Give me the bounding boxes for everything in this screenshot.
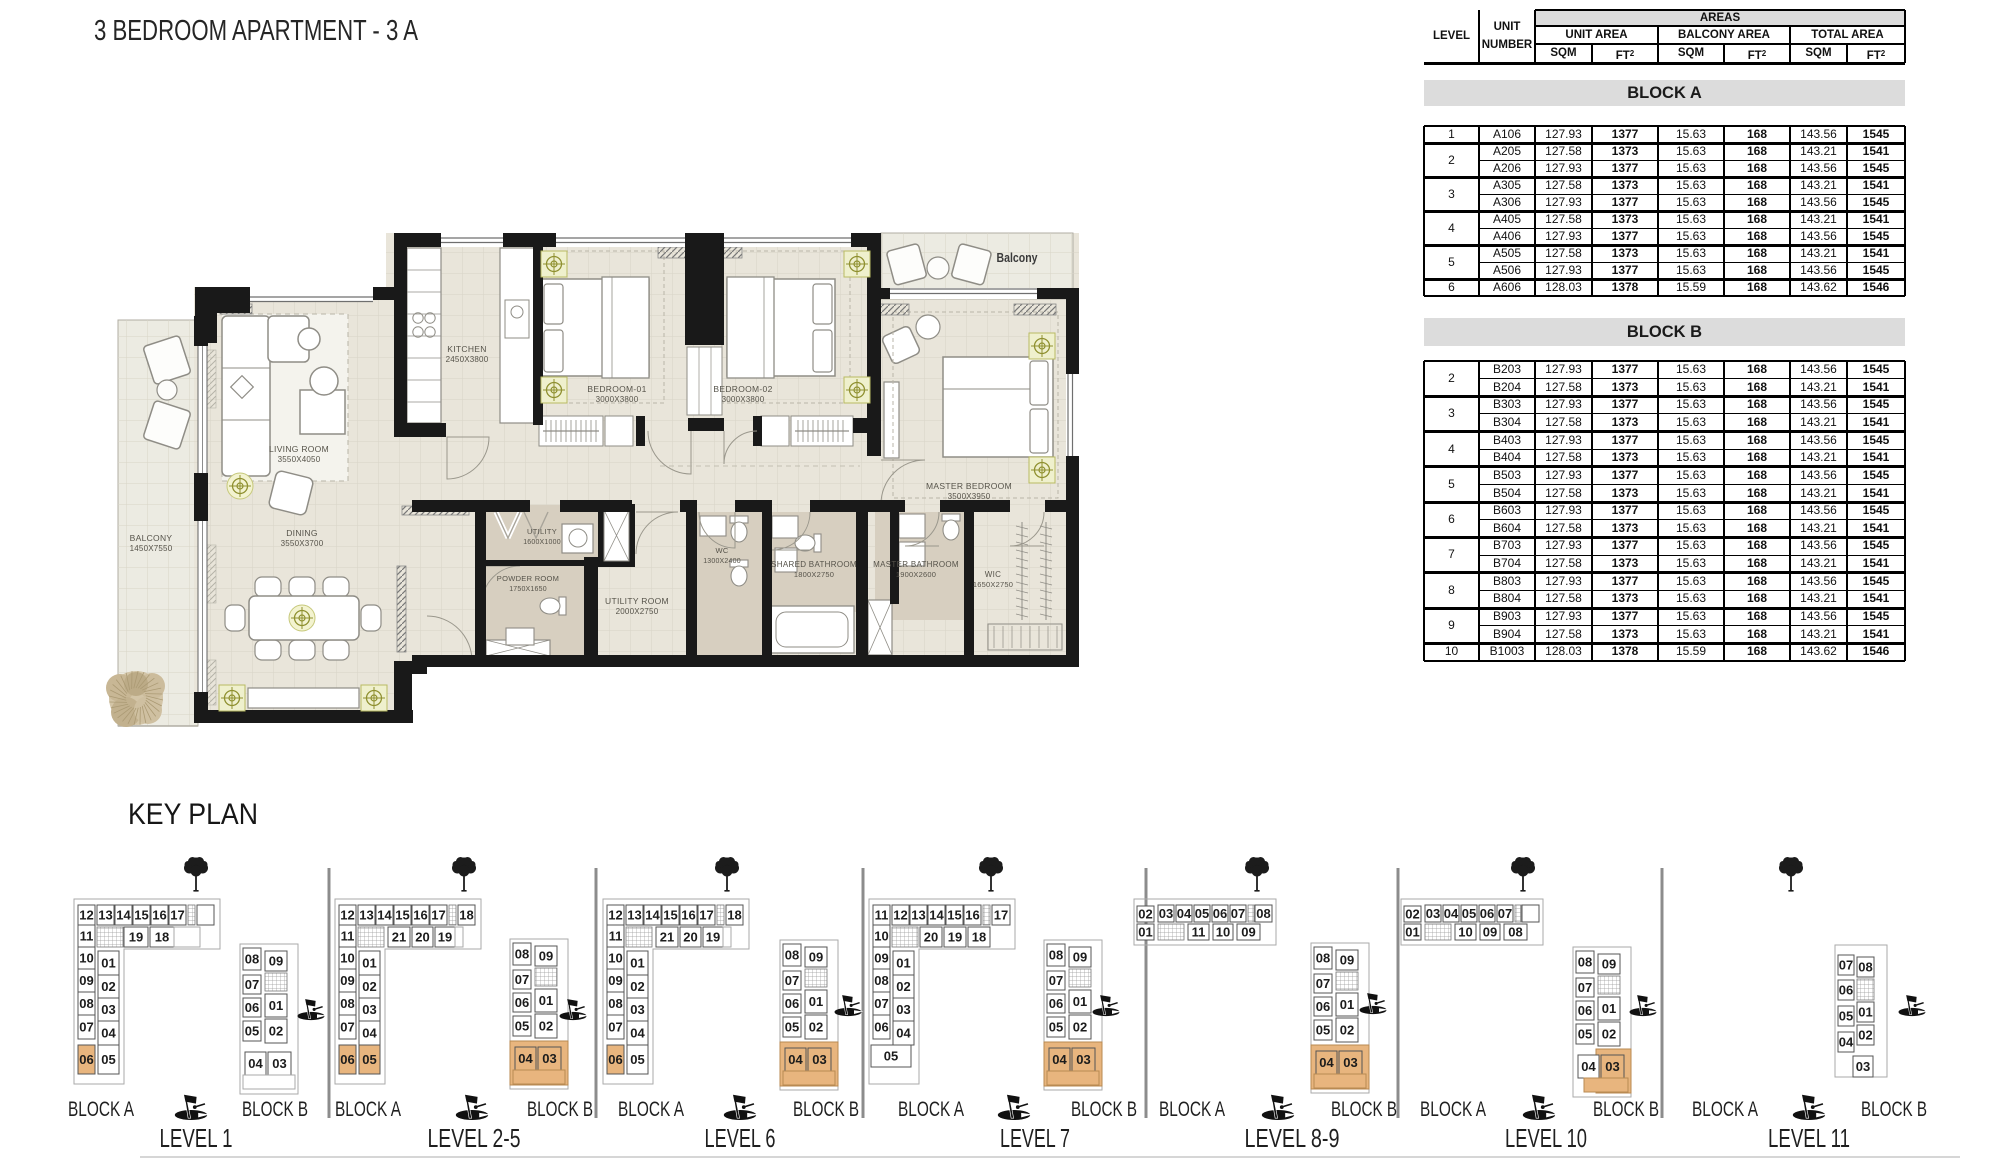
svg-text:06: 06	[1480, 906, 1494, 921]
svg-text:15: 15	[663, 908, 677, 923]
svg-text:LIVING ROOM: LIVING ROOM	[269, 444, 329, 454]
svg-text:03: 03	[1343, 1055, 1357, 1070]
svg-text:13: 13	[911, 908, 925, 923]
svg-text:03: 03	[1076, 1052, 1090, 1067]
svg-text:04: 04	[1177, 906, 1192, 921]
svg-text:15: 15	[395, 908, 409, 923]
svg-text:20: 20	[683, 930, 697, 945]
svg-text:15: 15	[947, 908, 961, 923]
svg-text:LEVEL 2-5: LEVEL 2-5	[428, 1123, 521, 1153]
svg-text:16: 16	[152, 908, 166, 923]
svg-text:14: 14	[116, 908, 131, 923]
svg-text:01: 01	[539, 993, 553, 1008]
svg-text:1900X2600: 1900X2600	[896, 570, 936, 579]
svg-text:03: 03	[812, 1052, 826, 1067]
svg-text:18: 18	[155, 930, 169, 945]
svg-text:SHARED BATHROOM: SHARED BATHROOM	[771, 560, 857, 569]
svg-text:05: 05	[101, 1052, 115, 1067]
svg-text:01: 01	[1858, 1005, 1872, 1020]
svg-text:09: 09	[1483, 925, 1497, 940]
svg-text:BLOCK B: BLOCK B	[1861, 1098, 1927, 1121]
svg-text:BLOCK A: BLOCK A	[1692, 1098, 1758, 1121]
svg-text:12: 12	[608, 908, 622, 923]
svg-text:08: 08	[1049, 948, 1063, 963]
svg-text:07: 07	[340, 1020, 354, 1035]
svg-text:1600X1000: 1600X1000	[523, 539, 561, 546]
svg-text:03: 03	[101, 1002, 115, 1017]
svg-text:04: 04	[788, 1052, 803, 1067]
svg-text:UTILITY ROOM: UTILITY ROOM	[605, 596, 669, 606]
svg-text:05: 05	[785, 1020, 799, 1035]
svg-text:LEVEL 8-9: LEVEL 8-9	[1245, 1123, 1340, 1153]
svg-text:07: 07	[245, 977, 259, 992]
svg-text:11: 11	[875, 908, 889, 923]
svg-text:20: 20	[415, 930, 429, 945]
svg-text:07: 07	[1231, 906, 1245, 921]
svg-text:02: 02	[1602, 1027, 1616, 1042]
svg-text:UTILITY: UTILITY	[527, 527, 557, 536]
svg-text:19: 19	[948, 930, 962, 945]
svg-text:08: 08	[874, 973, 888, 988]
svg-text:08: 08	[79, 996, 93, 1011]
svg-text:LEVEL 11: LEVEL 11	[1768, 1123, 1850, 1153]
svg-text:06: 06	[874, 1020, 888, 1035]
svg-text:3000X3800: 3000X3800	[596, 395, 639, 404]
svg-text:02: 02	[101, 979, 115, 994]
svg-text:05: 05	[1462, 906, 1476, 921]
svg-text:BLOCK A: BLOCK A	[68, 1098, 134, 1121]
svg-text:11: 11	[341, 929, 355, 944]
svg-text:16: 16	[413, 908, 427, 923]
svg-text:06: 06	[1213, 906, 1227, 921]
svg-text:DINING: DINING	[286, 528, 318, 538]
svg-text:BALCONY: BALCONY	[130, 533, 173, 543]
svg-text:08: 08	[1858, 960, 1872, 975]
svg-text:08: 08	[1578, 955, 1592, 970]
svg-text:1750X1650: 1750X1650	[509, 586, 547, 593]
svg-text:05: 05	[245, 1024, 259, 1039]
svg-text:06: 06	[608, 1052, 622, 1067]
svg-text:15: 15	[134, 908, 148, 923]
svg-text:19: 19	[706, 930, 720, 945]
svg-text:02: 02	[362, 979, 376, 994]
svg-text:05: 05	[362, 1052, 376, 1067]
svg-text:BLOCK A: BLOCK A	[618, 1098, 684, 1121]
svg-text:16: 16	[965, 908, 979, 923]
svg-text:18: 18	[459, 908, 473, 923]
svg-text:01: 01	[1602, 1001, 1616, 1016]
svg-text:02: 02	[809, 1020, 823, 1035]
svg-text:11: 11	[1192, 925, 1206, 940]
svg-text:06: 06	[515, 995, 529, 1010]
svg-text:04: 04	[1052, 1052, 1067, 1067]
svg-text:LEVEL 6: LEVEL 6	[705, 1123, 776, 1153]
svg-text:BLOCK A: BLOCK A	[1420, 1098, 1486, 1121]
svg-text:14: 14	[377, 908, 392, 923]
svg-text:17: 17	[699, 908, 713, 923]
svg-text:09: 09	[1340, 953, 1354, 968]
svg-text:07: 07	[79, 1020, 93, 1035]
svg-text:07: 07	[874, 996, 888, 1011]
svg-text:02: 02	[1340, 1023, 1354, 1038]
svg-text:03: 03	[542, 1051, 556, 1066]
svg-text:01: 01	[1405, 925, 1419, 940]
svg-text:LEVEL 10: LEVEL 10	[1505, 1123, 1587, 1153]
svg-text:KEY PLAN: KEY PLAN	[128, 798, 258, 831]
svg-text:09: 09	[608, 973, 622, 988]
svg-text:13: 13	[359, 908, 373, 923]
svg-text:07: 07	[608, 1020, 622, 1035]
svg-text:02: 02	[1138, 907, 1152, 922]
svg-text:1300X2400: 1300X2400	[703, 558, 741, 565]
svg-text:08: 08	[1508, 925, 1522, 940]
svg-text:12: 12	[79, 908, 93, 923]
svg-text:04: 04	[1581, 1059, 1596, 1074]
svg-text:02: 02	[1858, 1028, 1872, 1043]
svg-text:BLOCK A: BLOCK A	[335, 1098, 401, 1121]
svg-text:06: 06	[1578, 1003, 1592, 1018]
svg-text:03: 03	[1426, 906, 1440, 921]
svg-text:06: 06	[79, 1052, 93, 1067]
svg-text:Balcony: Balcony	[997, 250, 1039, 265]
svg-text:18: 18	[972, 930, 986, 945]
svg-text:01: 01	[101, 956, 115, 971]
svg-text:04: 04	[362, 1026, 377, 1041]
svg-text:11: 11	[80, 929, 94, 944]
svg-text:07: 07	[1049, 973, 1063, 988]
svg-text:10: 10	[79, 951, 93, 966]
svg-text:01: 01	[896, 956, 910, 971]
svg-text:11: 11	[609, 929, 623, 944]
svg-text:2450X3800: 2450X3800	[446, 355, 489, 364]
svg-text:03: 03	[362, 1002, 376, 1017]
svg-text:BEDROOM-01: BEDROOM-01	[587, 384, 646, 394]
svg-text:02: 02	[539, 1019, 553, 1034]
svg-text:02: 02	[269, 1024, 283, 1039]
svg-text:BLOCK B: BLOCK B	[793, 1098, 859, 1121]
svg-text:02: 02	[896, 979, 910, 994]
svg-text:01: 01	[1138, 925, 1152, 940]
svg-text:03: 03	[1605, 1059, 1619, 1074]
svg-text:05: 05	[515, 1019, 529, 1034]
svg-text:BLOCK B: BLOCK B	[242, 1098, 308, 1121]
svg-text:BLOCK B: BLOCK B	[1593, 1098, 1659, 1121]
svg-text:09: 09	[1073, 950, 1087, 965]
svg-text:05: 05	[884, 1049, 898, 1064]
svg-text:01: 01	[269, 998, 283, 1013]
svg-text:01: 01	[630, 956, 644, 971]
svg-text:1800X2750: 1800X2750	[794, 570, 834, 579]
svg-text:2000X2750: 2000X2750	[616, 607, 659, 616]
svg-text:03: 03	[1159, 906, 1173, 921]
svg-text:18: 18	[727, 908, 741, 923]
svg-text:09: 09	[340, 973, 354, 988]
svg-text:07: 07	[1316, 976, 1330, 991]
svg-text:06: 06	[1839, 983, 1853, 998]
svg-text:09: 09	[1241, 925, 1255, 940]
svg-text:19: 19	[438, 930, 452, 945]
svg-text:WC: WC	[715, 546, 728, 555]
svg-text:LEVEL 7: LEVEL 7	[1000, 1123, 1070, 1153]
svg-text:BLOCK B: BLOCK B	[1331, 1098, 1397, 1121]
svg-text:01: 01	[1073, 994, 1087, 1009]
svg-text:09: 09	[269, 954, 283, 969]
svg-text:05: 05	[1839, 1009, 1853, 1024]
svg-text:10: 10	[340, 951, 354, 966]
svg-text:03: 03	[630, 1002, 644, 1017]
svg-text:08: 08	[515, 947, 529, 962]
svg-text:12: 12	[893, 908, 907, 923]
svg-text:04: 04	[101, 1026, 116, 1041]
svg-text:BLOCK B: BLOCK B	[1071, 1098, 1137, 1121]
svg-text:12: 12	[340, 908, 354, 923]
svg-text:WIC: WIC	[985, 570, 1001, 579]
svg-text:03: 03	[1856, 1059, 1870, 1074]
svg-text:09: 09	[1602, 957, 1616, 972]
svg-text:10: 10	[874, 929, 888, 944]
svg-text:10: 10	[1458, 925, 1472, 940]
svg-text:10: 10	[1216, 925, 1230, 940]
svg-text:08: 08	[1316, 951, 1330, 966]
svg-text:05: 05	[1578, 1027, 1592, 1042]
svg-text:09: 09	[79, 973, 93, 988]
svg-text:3 BEDROOM APARTMENT - 3 A: 3 BEDROOM APARTMENT - 3 A	[94, 15, 418, 47]
svg-text:10: 10	[608, 951, 622, 966]
svg-text:13: 13	[98, 908, 112, 923]
svg-text:01: 01	[362, 956, 376, 971]
svg-text:BLOCK B: BLOCK B	[527, 1098, 593, 1121]
svg-text:01: 01	[809, 994, 823, 1009]
svg-text:04: 04	[630, 1026, 645, 1041]
svg-text:05: 05	[1049, 1020, 1063, 1035]
svg-text:17: 17	[170, 908, 184, 923]
svg-text:03: 03	[272, 1056, 286, 1071]
svg-text:03: 03	[896, 1002, 910, 1017]
svg-text:09: 09	[539, 949, 553, 964]
svg-text:02: 02	[630, 979, 644, 994]
svg-text:07: 07	[785, 973, 799, 988]
svg-text:20: 20	[924, 930, 938, 945]
svg-text:02: 02	[1405, 907, 1419, 922]
svg-text:17: 17	[431, 908, 445, 923]
svg-text:07: 07	[1498, 906, 1512, 921]
svg-text:MASTER BATHROOM: MASTER BATHROOM	[873, 560, 959, 569]
svg-text:04: 04	[248, 1056, 263, 1071]
svg-text:08: 08	[608, 996, 622, 1011]
svg-text:06: 06	[1049, 996, 1063, 1011]
svg-text:06: 06	[785, 996, 799, 1011]
svg-text:05: 05	[1316, 1023, 1330, 1038]
svg-text:POWDER ROOM: POWDER ROOM	[497, 574, 559, 583]
svg-text:3500X3950: 3500X3950	[948, 492, 991, 501]
svg-text:08: 08	[245, 952, 259, 967]
svg-text:06: 06	[340, 1052, 354, 1067]
svg-text:3550X3700: 3550X3700	[281, 539, 324, 548]
svg-text:BLOCK A: BLOCK A	[898, 1098, 964, 1121]
svg-text:07: 07	[515, 972, 529, 987]
svg-text:07: 07	[1578, 980, 1592, 995]
svg-text:08: 08	[785, 948, 799, 963]
svg-text:BEDROOM-02: BEDROOM-02	[713, 384, 772, 394]
svg-text:1450X7550: 1450X7550	[130, 544, 173, 553]
svg-text:BLOCK A: BLOCK A	[1159, 1098, 1225, 1121]
svg-text:02: 02	[1073, 1020, 1087, 1035]
svg-text:KITCHEN: KITCHEN	[447, 344, 486, 354]
svg-text:21: 21	[660, 930, 674, 945]
svg-text:13: 13	[627, 908, 641, 923]
svg-text:LEVEL 1: LEVEL 1	[160, 1123, 233, 1153]
svg-text:14: 14	[645, 908, 660, 923]
svg-text:19: 19	[129, 930, 143, 945]
svg-text:04: 04	[1444, 906, 1459, 921]
svg-text:14: 14	[929, 908, 944, 923]
svg-text:1650X2750: 1650X2750	[973, 580, 1013, 589]
svg-text:01: 01	[1340, 997, 1354, 1012]
svg-text:3000X3800: 3000X3800	[722, 395, 765, 404]
svg-text:07: 07	[1839, 958, 1853, 973]
svg-text:05: 05	[1195, 906, 1209, 921]
svg-text:05: 05	[630, 1052, 644, 1067]
svg-text:04: 04	[1319, 1055, 1334, 1070]
svg-text:3550X4050: 3550X4050	[278, 455, 321, 464]
svg-text:MASTER BEDROOM: MASTER BEDROOM	[926, 481, 1012, 491]
svg-text:04: 04	[1839, 1035, 1854, 1050]
svg-text:09: 09	[874, 951, 888, 966]
svg-text:04: 04	[896, 1026, 911, 1041]
svg-text:08: 08	[1256, 906, 1270, 921]
svg-text:16: 16	[681, 908, 695, 923]
svg-text:04: 04	[518, 1051, 533, 1066]
svg-text:08: 08	[340, 996, 354, 1011]
svg-text:09: 09	[809, 950, 823, 965]
svg-text:06: 06	[1316, 999, 1330, 1014]
svg-text:06: 06	[245, 1000, 259, 1015]
svg-text:17: 17	[994, 908, 1008, 923]
svg-text:21: 21	[392, 930, 406, 945]
